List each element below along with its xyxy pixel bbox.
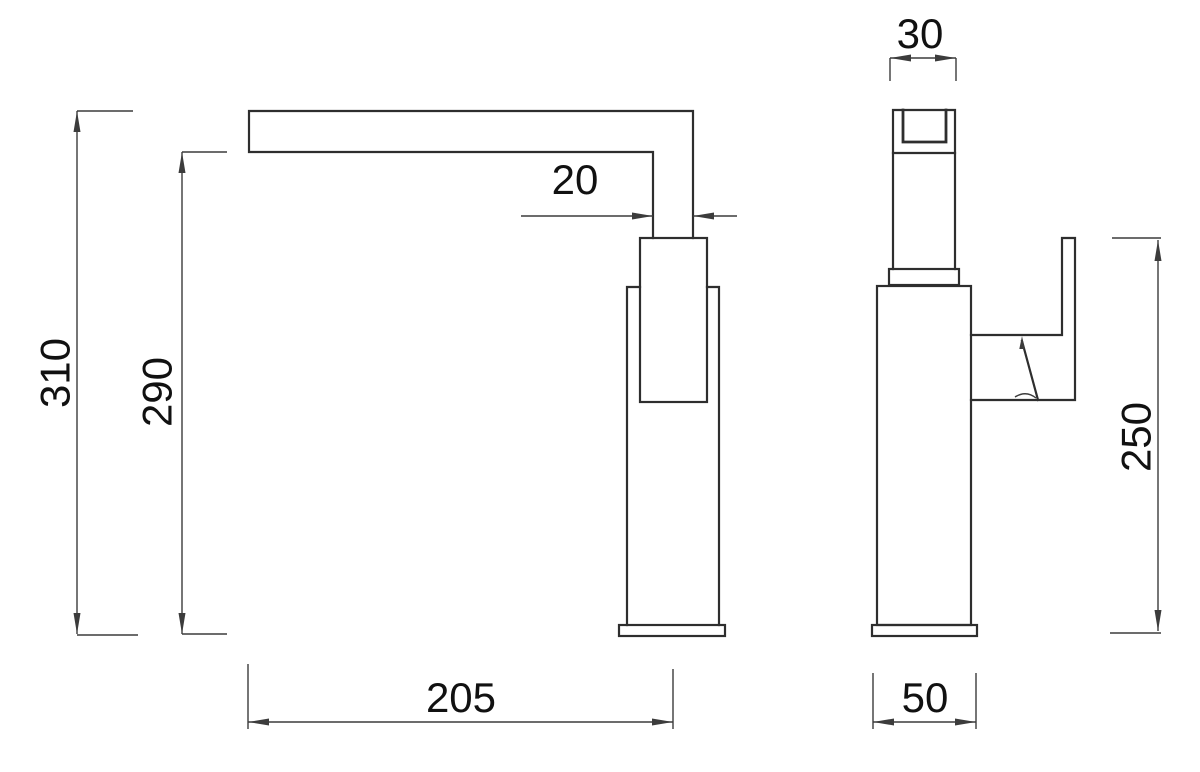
dimension-250: 250 <box>1110 238 1162 633</box>
spout-opening <box>903 110 946 142</box>
arrowhead-left <box>248 719 269 726</box>
dim-label-30: 30 <box>897 10 944 57</box>
arrowhead-left <box>873 719 894 726</box>
dim-label-310: 310 <box>32 338 79 408</box>
arrowhead-right <box>955 719 976 726</box>
arrowhead-left <box>693 213 714 220</box>
arrowhead-down <box>74 613 81 634</box>
arrowhead-up <box>74 111 81 132</box>
dim-label-205: 205 <box>426 674 496 721</box>
aerator-housing <box>640 238 707 402</box>
handle-pivot-diagonal <box>1022 341 1038 400</box>
dim-label-50: 50 <box>902 674 949 721</box>
arrowhead-right <box>652 719 673 726</box>
handle-pivot-arc <box>1015 394 1036 398</box>
arrowhead-right <box>632 213 653 220</box>
dimension-30: 30 <box>890 10 956 81</box>
handle-lever <box>971 238 1075 400</box>
spout-arm-outline <box>249 111 693 238</box>
body-column-front <box>877 286 971 625</box>
arrowhead-up <box>1155 240 1162 261</box>
arrowhead-down <box>1155 610 1162 631</box>
dimension-290: 290 <box>134 152 227 634</box>
base-plate-front <box>872 625 977 636</box>
dim-label-290: 290 <box>134 357 181 427</box>
base-plate-side <box>619 625 725 636</box>
dimension-205: 205 <box>248 664 673 729</box>
handle-pivot-arrowhead <box>1019 336 1024 349</box>
drawing-canvas: 310 290 20 205 30 <box>0 0 1200 772</box>
dimension-50: 50 <box>873 673 976 729</box>
front-view <box>872 110 1075 636</box>
arrowhead-up <box>179 152 186 173</box>
faucet-technical-drawing: 310 290 20 205 30 <box>0 0 1200 772</box>
dimension-20: 20 <box>521 156 737 220</box>
dimension-310: 310 <box>32 111 138 635</box>
collar <box>889 269 959 285</box>
dim-label-250: 250 <box>1113 402 1160 472</box>
side-view <box>249 111 725 636</box>
arrowhead-down <box>179 613 186 634</box>
dim-label-20: 20 <box>552 156 599 203</box>
